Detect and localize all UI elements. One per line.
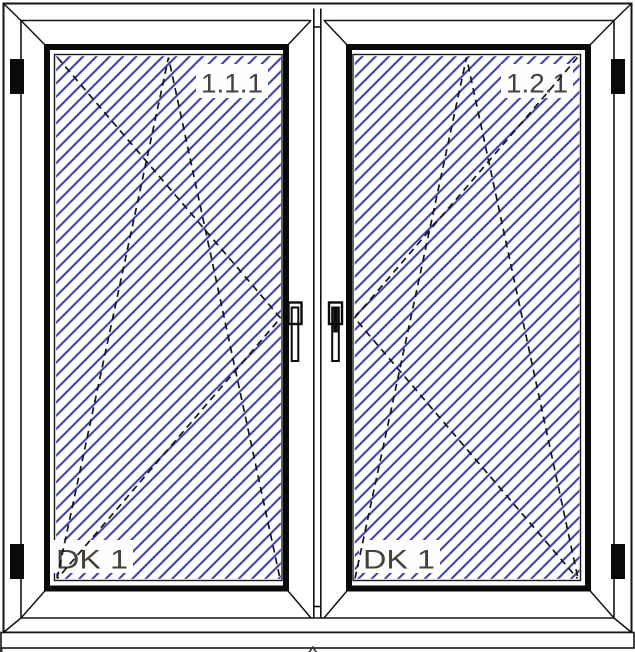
handle-right-grip-fill	[333, 309, 338, 333]
sash-right: 1.2.1 DK 1	[324, 21, 614, 619]
opening-label-left: DK 1	[56, 545, 128, 575]
sash-left: 1.1.1 DK 1	[21, 21, 311, 619]
window-drawing-stage: 1.1.1 DK 1 1.2.1 DK 1	[0, 0, 635, 652]
handle-left-grip-icon[interactable]	[292, 308, 299, 362]
window-technical-drawing: 1.1.1 DK 1 1.2.1 DK 1	[0, 0, 635, 652]
glass-pane-right[interactable]	[355, 56, 580, 579]
dimension-mark-left	[0, 649, 3, 652]
hinge-top-left-icon	[10, 59, 24, 94]
hinge-bottom-right-icon	[611, 544, 625, 579]
position-label-right: 1.2.1	[506, 69, 568, 99]
hinge-top-right-icon	[611, 59, 625, 94]
position-label-left: 1.1.1	[201, 69, 263, 99]
window-sill	[1, 633, 634, 649]
glass-pane-left[interactable]	[56, 56, 281, 579]
opening-label-right: DK 1	[363, 545, 435, 575]
hinge-bottom-left-icon	[10, 544, 24, 579]
